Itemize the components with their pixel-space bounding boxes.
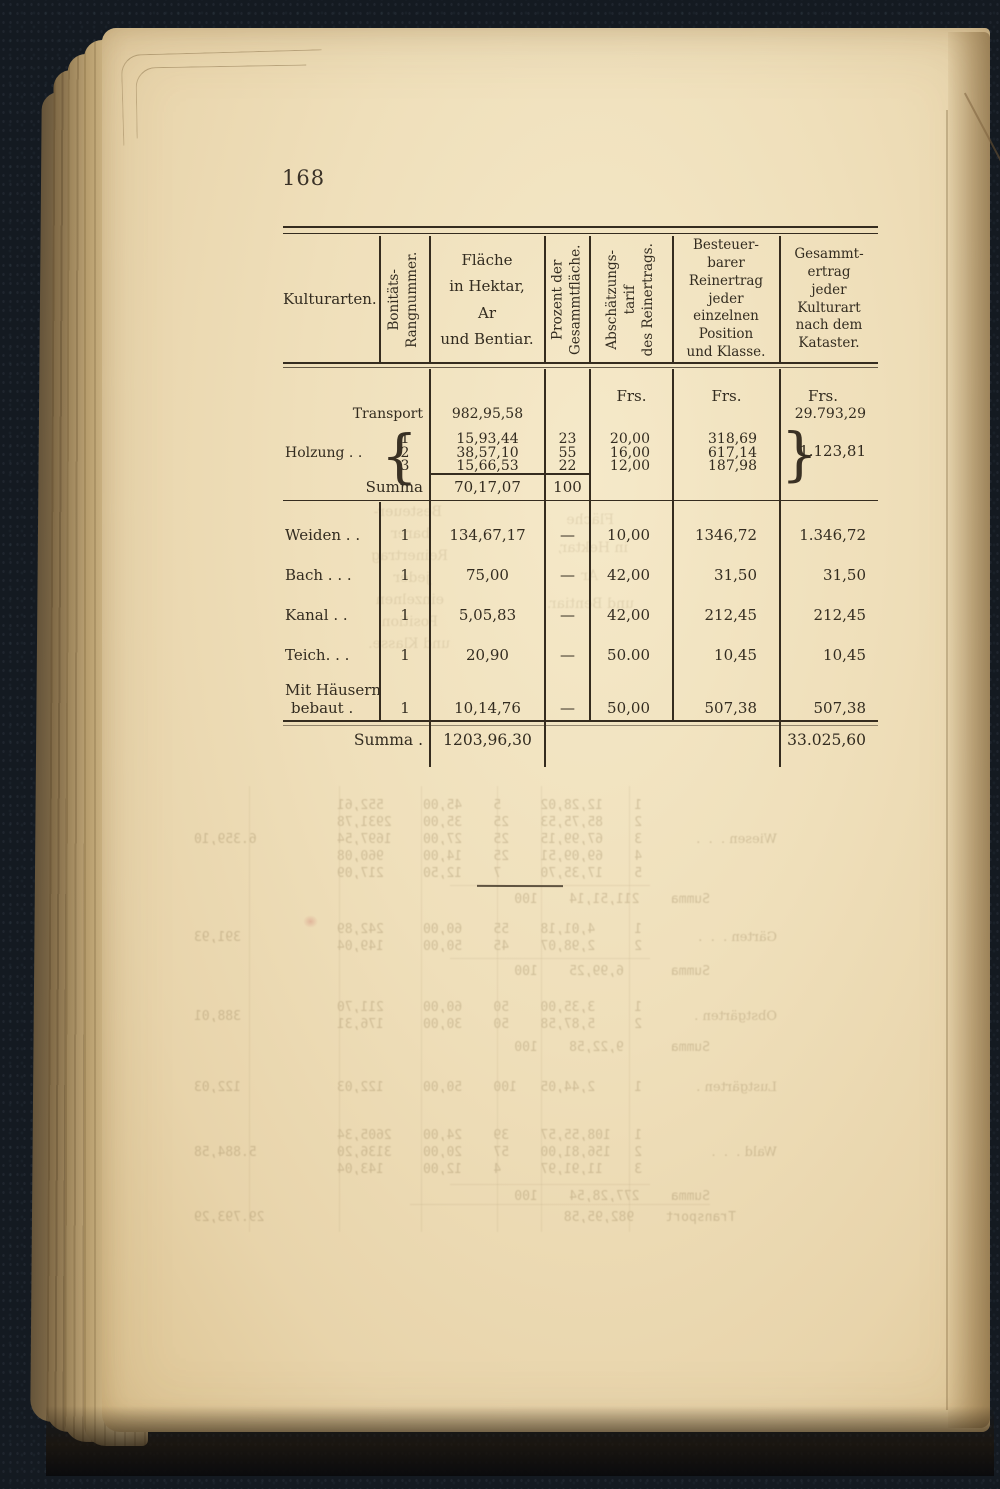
page-bottom-shadow xyxy=(46,1406,994,1476)
prozent-value: — xyxy=(545,606,590,624)
flaeche-value: 134,67,17 xyxy=(430,526,545,544)
prozent-value: 100 xyxy=(545,478,590,496)
gesammt-value: 10,45 xyxy=(780,646,866,664)
header-line: jeder xyxy=(687,291,766,309)
ink-mark-line xyxy=(477,885,563,888)
currency-label: Frs. xyxy=(673,387,780,405)
currency-row: Frs. Frs. Frs. xyxy=(283,387,878,407)
header-bonitaet: Bonitäts- Rangnummer. xyxy=(380,236,429,363)
gesammt-value: 31,50 xyxy=(780,566,866,584)
header-line: Gesammtfläche. xyxy=(567,244,585,354)
header-tarif: Abschätzungs- tarif des Reinertrags. xyxy=(590,236,672,363)
header-gesammtertrag: Gesammt- ertrag jeder Kulturart nach dem… xyxy=(780,236,878,363)
prozent-value: — xyxy=(545,526,590,544)
reinertrag-value: 507,38 xyxy=(673,699,757,717)
row-label: Kanal . . xyxy=(285,606,385,624)
prozent-value: — xyxy=(545,646,590,664)
rang-value: 1 xyxy=(380,526,430,544)
gesammt-value: 507,38 xyxy=(780,699,866,717)
page-number: 168 xyxy=(282,166,325,190)
flaeche-value: 5,05,83 xyxy=(430,606,545,624)
flaeche-value: 70,17,07 xyxy=(430,478,545,496)
gesammt-value: 1.123,81 xyxy=(780,442,866,460)
header-line: Kataster. xyxy=(794,335,863,353)
row-label: Summa . xyxy=(283,731,423,749)
flaeche-value: 10,14,76 xyxy=(430,699,545,717)
header-line: Reinertrag xyxy=(687,273,766,291)
header-line: Prozent der xyxy=(549,244,567,354)
header-line: einzelnen xyxy=(687,308,766,326)
header-flaeche: Fläche in Hektar, Ar und Bentiar. xyxy=(430,236,544,363)
header-gesammtertrag-label: Gesammt- ertrag jeder Kulturart nach dem… xyxy=(794,246,863,353)
tarif-value: 42,00 xyxy=(590,566,650,584)
header-flaeche-label: Fläche in Hektar, Ar und Bentiar. xyxy=(440,247,533,352)
header-line: und Klasse. xyxy=(687,344,766,362)
header-line: nach dem xyxy=(794,317,863,335)
table-row-bach: Bach . . . 1 75,00 — 42,00 31,50 31,50 xyxy=(283,566,878,586)
rang-value: 1 xyxy=(380,606,430,624)
header-line: jeder xyxy=(794,282,863,300)
tarif-value: 10,00 xyxy=(590,526,650,544)
page-corner-crease xyxy=(135,65,307,139)
header-besteuerbarer-label: Besteuer- barer Reinertrag jeder einzeln… xyxy=(687,237,766,362)
rang-value: 1 xyxy=(380,646,430,664)
holzung-total-row: 1.123,81 xyxy=(283,442,878,462)
table-row-summa-1: Summa 70,17,07 100 xyxy=(283,478,878,498)
header-line: Position xyxy=(687,326,766,344)
flaeche-value: 75,00 xyxy=(430,566,545,584)
header-bonitaet-label: Bonitäts- Rangnummer. xyxy=(387,251,423,347)
header-line: tarif xyxy=(622,243,640,356)
row-label: Bach . . . xyxy=(285,566,385,584)
table-rule-top2 xyxy=(283,233,878,234)
page-right-fold xyxy=(948,32,990,1428)
gesammt-value: 212,45 xyxy=(780,606,866,624)
header-prozent-label: Prozent der Gesammtfläche. xyxy=(549,244,585,354)
table-rule-top xyxy=(283,226,878,228)
prozent-value: — xyxy=(545,566,590,584)
table-rule-bottom xyxy=(283,720,878,722)
flaeche-value: 20,90 xyxy=(430,646,545,664)
kulturarten-table: Kulturarten. Bonitäts- Rangnummer. Fläch… xyxy=(283,226,878,786)
header-line: und Bentiar. xyxy=(440,326,533,352)
tarif-value: 50.00 xyxy=(590,646,650,664)
header-line: Kulturart xyxy=(794,300,863,318)
header-line: des Reinertrags. xyxy=(640,243,658,356)
rang-value: 1 xyxy=(380,699,430,717)
table-row-teich: Teich. . . 1 20,90 — 50.00 10,45 10,45 xyxy=(283,646,878,666)
tarif-value: 42,00 xyxy=(590,606,650,624)
tarif-value: 50,00 xyxy=(590,699,650,717)
header-line: Bonitäts- xyxy=(387,251,405,347)
table-row-weiden: Weiden . . 1 134,67,17 — 10,00 1346,72 1… xyxy=(283,526,878,546)
header-tarif-label: Abschätzungs- tarif des Reinertrags. xyxy=(604,243,657,356)
table-rule-section xyxy=(283,500,878,501)
row-label: bebaut . xyxy=(291,699,383,717)
header-prozent: Prozent der Gesammtfläche. xyxy=(545,236,589,363)
table-row-haeuser: bebaut . 1 10,14,76 — 50,00 507,38 507,3… xyxy=(283,699,878,719)
row-label: Transport xyxy=(283,406,423,422)
paper-stain xyxy=(303,915,318,928)
rang-value: 1 xyxy=(380,566,430,584)
table-row-summa-2: Summa . 1203,96,30 33.025,60 xyxy=(283,731,878,751)
gesammt-value: 1.346,72 xyxy=(780,526,866,544)
prozent-value: — xyxy=(545,699,590,717)
header-line: Fläche xyxy=(440,247,533,273)
header-line: Ar xyxy=(440,300,533,326)
row-label: Summa xyxy=(283,478,423,496)
table-rule-bottom2 xyxy=(283,725,878,726)
flaeche-value: 1203,96,30 xyxy=(430,731,545,749)
header-line: Abschätzungs- xyxy=(604,243,622,356)
header-besteuerbarer: Besteuer- barer Reinertrag jeder einzeln… xyxy=(673,236,779,363)
currency-label: Frs. xyxy=(780,387,866,405)
row-label: Teich. . . xyxy=(285,646,385,664)
reinertrag-value: 31,50 xyxy=(673,566,757,584)
currency-label: Frs. xyxy=(590,387,673,405)
header-line: Besteuer- xyxy=(687,237,766,255)
header-line: barer xyxy=(687,255,766,273)
header-kulturarten-label: Kulturarten. xyxy=(283,288,377,311)
header-kulturarten: Kulturarten. xyxy=(283,236,379,363)
gesammt-value: 33.025,60 xyxy=(780,731,866,749)
row-label: Mit Häusern xyxy=(285,681,385,699)
flaeche-value: 982,95,58 xyxy=(430,406,545,422)
row-label: Weiden . . xyxy=(285,526,385,544)
header-line: in Hektar, xyxy=(440,273,533,299)
table-rule-header-bottom2 xyxy=(283,367,878,368)
book-scan-background: Flächein Hektar,Arund Bentiar.Besteuer-b… xyxy=(0,0,1000,1489)
reinertrag-value: 1346,72 xyxy=(673,526,757,544)
header-line: Gesammt- xyxy=(794,246,863,264)
page-crease-line xyxy=(946,110,948,1410)
table-row-kanal: Kanal . . 1 5,05,83 — 42,00 212,45 212,4… xyxy=(283,606,878,626)
header-line: Rangnummer. xyxy=(405,251,423,347)
reinertrag-value: 10,45 xyxy=(673,646,757,664)
header-line: ertrag xyxy=(794,264,863,282)
reinertrag-value: 212,45 xyxy=(673,606,757,624)
haeuser-label-row: Mit Häusern xyxy=(283,681,878,701)
